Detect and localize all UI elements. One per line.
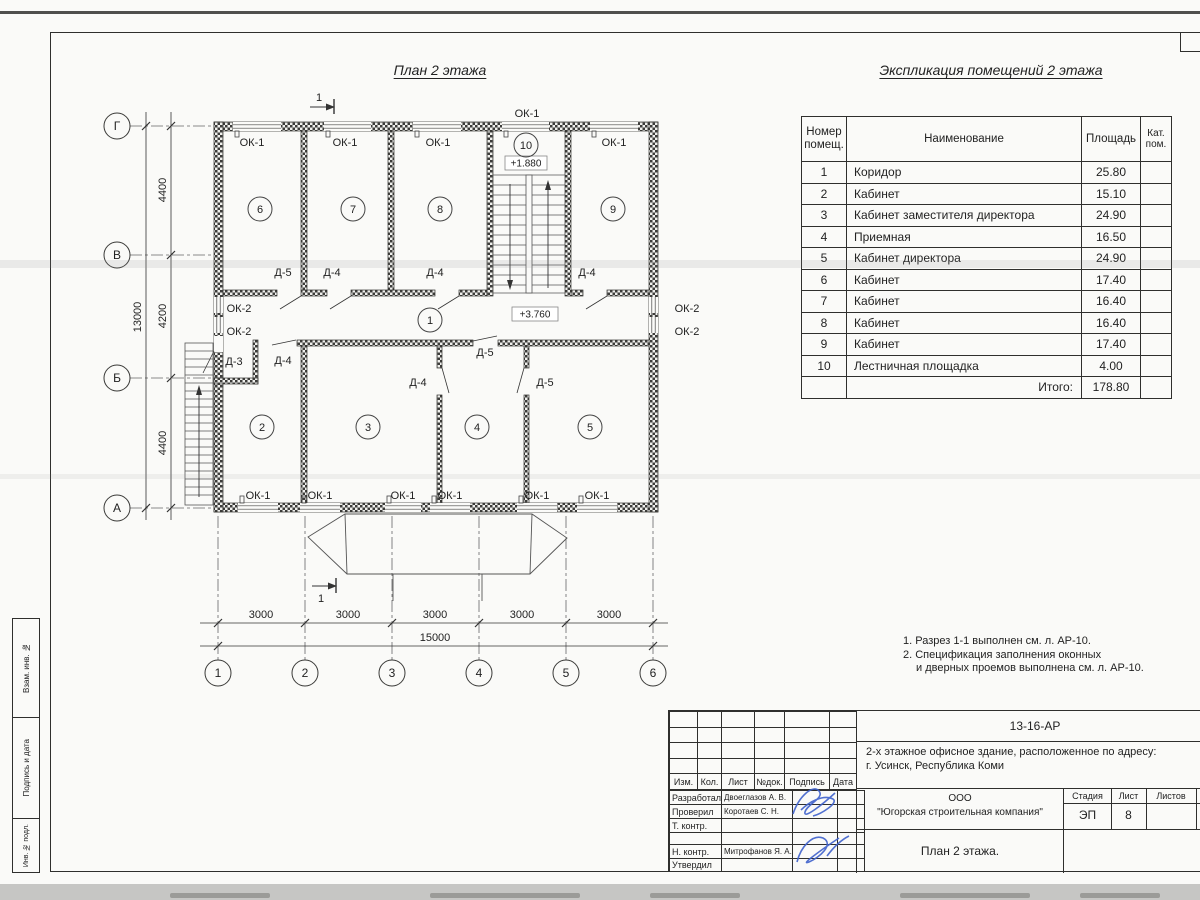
sheets-header: Листов xyxy=(1147,791,1195,801)
dim-4200: 4200 xyxy=(157,304,169,328)
entrance-canopy xyxy=(308,514,567,601)
svg-text:ОК-1: ОК-1 xyxy=(515,108,540,120)
svg-text:4: 4 xyxy=(476,666,483,680)
left-attribute-strip: Взам. инв. № Подпись и дата Инв. № подл. xyxy=(12,618,40,873)
col-area: Площадь xyxy=(1082,117,1141,162)
drawing-sheet: План 2 этажа Экспликация помещений 2 эта… xyxy=(0,0,1200,900)
room-row: 3Кабинет заместителя директора24.90 xyxy=(802,205,1172,227)
strip-cell: Подпись и дата xyxy=(12,717,40,819)
sheet-header: Лист xyxy=(1112,791,1145,801)
scan-smudge xyxy=(1080,893,1160,898)
svg-text:4: 4 xyxy=(474,422,480,434)
svg-text:Г: Г xyxy=(114,119,121,133)
svg-text:ОК-1: ОК-1 xyxy=(240,137,265,149)
organization-line1: ООО xyxy=(858,793,1062,804)
room-row: 2Кабинет15.10 xyxy=(802,183,1172,205)
scan-edge-line xyxy=(0,11,1200,14)
room-numbers: 12 34 56 78 910 xyxy=(257,140,616,434)
frame-corner-cell xyxy=(1180,32,1200,52)
svg-text:5: 5 xyxy=(587,422,593,434)
svg-text:Д-4: Д-4 xyxy=(323,267,340,279)
svg-text:ОК-1: ОК-1 xyxy=(525,490,550,502)
dim-3000-1: 3000 xyxy=(249,609,273,621)
svg-text:ОК-1: ОК-1 xyxy=(602,137,627,149)
floor-plan: 4400 4200 4400 13000 3000 3000 3000 3000… xyxy=(95,85,720,695)
svg-text:8: 8 xyxy=(437,204,443,216)
col-number: Номерпомещ. xyxy=(802,117,847,162)
svg-text:1: 1 xyxy=(316,92,322,104)
table-header-row: Номерпомещ. Наименование Площадь Кат.пом… xyxy=(802,117,1172,162)
svg-text:2: 2 xyxy=(259,422,265,434)
svg-text:Д-5: Д-5 xyxy=(274,267,291,279)
room-schedule-table: Номерпомещ. Наименование Площадь Кат.пом… xyxy=(801,116,1172,399)
svg-text:ОК-1: ОК-1 xyxy=(438,490,463,502)
dim-4400-top: 4400 xyxy=(157,178,169,202)
note-line: 2. Спецификация заполнения оконных xyxy=(903,649,1200,663)
dim-3000-3: 3000 xyxy=(423,609,447,621)
svg-text:ОК-1: ОК-1 xyxy=(391,490,416,502)
project-description-line2: г. Усинск, Республика Коми xyxy=(866,760,1200,772)
svg-text:6: 6 xyxy=(650,666,657,680)
level-stair: +1.880 xyxy=(511,159,542,170)
strip-cell: Взам. инв. № xyxy=(12,618,40,718)
svg-text:ОК-1: ОК-1 xyxy=(333,137,358,149)
svg-text:Д-4: Д-4 xyxy=(426,267,443,279)
strip-label-podpis: Подпись и дата xyxy=(22,739,31,797)
svg-text:1: 1 xyxy=(318,593,324,605)
dim-3000-5: 3000 xyxy=(597,609,621,621)
svg-text:9: 9 xyxy=(610,204,616,216)
notes: 1. Разрез 1-1 выполнен см. л. АР-10. 2. … xyxy=(903,635,1200,676)
svg-text:3: 3 xyxy=(365,422,371,434)
svg-text:2: 2 xyxy=(302,666,309,680)
scan-smudge xyxy=(650,893,740,898)
svg-text:ОК-1: ОК-1 xyxy=(585,490,610,502)
dim-3000-4: 3000 xyxy=(510,609,534,621)
svg-text:Д-4: Д-4 xyxy=(578,267,595,279)
svg-text:Д-5: Д-5 xyxy=(536,377,553,389)
section-mark-bottom: 1 xyxy=(312,578,337,605)
stage-value: ЭП xyxy=(1065,808,1110,822)
svg-text:Б: Б xyxy=(113,371,121,385)
svg-text:ОК-1: ОК-1 xyxy=(426,137,451,149)
svg-text:6: 6 xyxy=(257,204,263,216)
scan-smudge xyxy=(430,893,580,898)
room-row: 9Кабинет17.40 xyxy=(802,334,1172,356)
strip-label-vzam: Взам. инв. № xyxy=(22,643,31,693)
dim-3000-2: 3000 xyxy=(336,609,360,621)
svg-text:ОК-1: ОК-1 xyxy=(246,490,271,502)
note-line: и дверных проемов выполнена см. л. АР-10… xyxy=(903,662,1200,676)
room-row: 1Коридор25.80 xyxy=(802,162,1172,184)
walls xyxy=(214,122,658,512)
room-row: 7Кабинет16.40 xyxy=(802,291,1172,313)
section-mark-top: 1 xyxy=(310,92,335,114)
room-row: 6Кабинет17.40 xyxy=(802,269,1172,291)
svg-text:ОК-2: ОК-2 xyxy=(675,326,700,338)
main-staircase xyxy=(493,175,565,293)
svg-text:5: 5 xyxy=(563,666,570,680)
note-line: 1. Разрез 1-1 выполнен см. л. АР-10. xyxy=(903,635,1200,649)
svg-text:10: 10 xyxy=(520,140,532,152)
stage-header: Стадия xyxy=(1065,791,1110,801)
scan-streak xyxy=(0,260,1200,268)
svg-text:1: 1 xyxy=(215,666,222,680)
dim-4400-bottom: 4400 xyxy=(157,431,169,455)
window-labels: ОК-1ОК-1 ОК-1ОК-1 ОК-1 ОК-1ОК-1 ОК-1ОК-1… xyxy=(227,108,700,502)
dim-15000: 15000 xyxy=(420,632,451,644)
title-block: Изм.Кол.Лист №док.ПодписьДата Разработал… xyxy=(668,710,1200,872)
dim-13000: 13000 xyxy=(132,302,144,333)
axis-labels: ГВ БА 12 34 56 xyxy=(113,119,657,680)
svg-text:Д-4: Д-4 xyxy=(274,355,291,367)
col-category: Кат.пом. xyxy=(1141,117,1172,162)
room-row: 10Лестничная площадка4.00 xyxy=(802,355,1172,377)
windows xyxy=(214,122,658,512)
col-name: Наименование xyxy=(847,117,1082,162)
strip-label-inv: Инв. № подл. xyxy=(23,824,30,867)
axis-circles xyxy=(104,113,666,686)
svg-text:Д-3: Д-3 xyxy=(225,356,242,368)
total-row: Итого:178.80 xyxy=(802,377,1172,399)
svg-text:А: А xyxy=(113,501,121,515)
scan-smudge xyxy=(900,893,1030,898)
sheet-value: 8 xyxy=(1112,808,1145,822)
svg-text:ОК-2: ОК-2 xyxy=(227,303,252,315)
svg-text:Д-5: Д-5 xyxy=(476,347,493,359)
plan-title: План 2 этажа xyxy=(340,62,540,78)
document-number: 13-16-АР xyxy=(856,719,1200,733)
signature-ink-2 xyxy=(797,836,849,863)
svg-text:3: 3 xyxy=(389,666,396,680)
sheet-caption: План 2 этажа. xyxy=(858,844,1062,858)
handwritten-signatures xyxy=(779,766,869,873)
external-staircase xyxy=(185,343,213,505)
svg-text:ОК-2: ОК-2 xyxy=(675,303,700,315)
svg-text:7: 7 xyxy=(350,204,356,216)
svg-text:1: 1 xyxy=(427,315,433,327)
scan-streak xyxy=(0,474,1200,479)
strip-cell: Инв. № подл. xyxy=(12,818,40,873)
room-row: 8Кабинет16.40 xyxy=(802,312,1172,334)
project-description-line1: 2-х этажное офисное здание, расположенно… xyxy=(866,746,1200,758)
explication-title: Экспликация помещений 2 этажа xyxy=(855,62,1127,78)
signature-ink-1 xyxy=(793,789,835,816)
organization-line2: "Югорская строительная компания" xyxy=(858,807,1062,818)
level-corridor: +3.760 xyxy=(520,310,551,321)
svg-text:ОК-2: ОК-2 xyxy=(227,326,252,338)
svg-text:Д-4: Д-4 xyxy=(409,377,426,389)
svg-text:ОК-1: ОК-1 xyxy=(308,490,333,502)
scan-smudge xyxy=(170,893,270,898)
room-row: 4Приемная16.50 xyxy=(802,226,1172,248)
